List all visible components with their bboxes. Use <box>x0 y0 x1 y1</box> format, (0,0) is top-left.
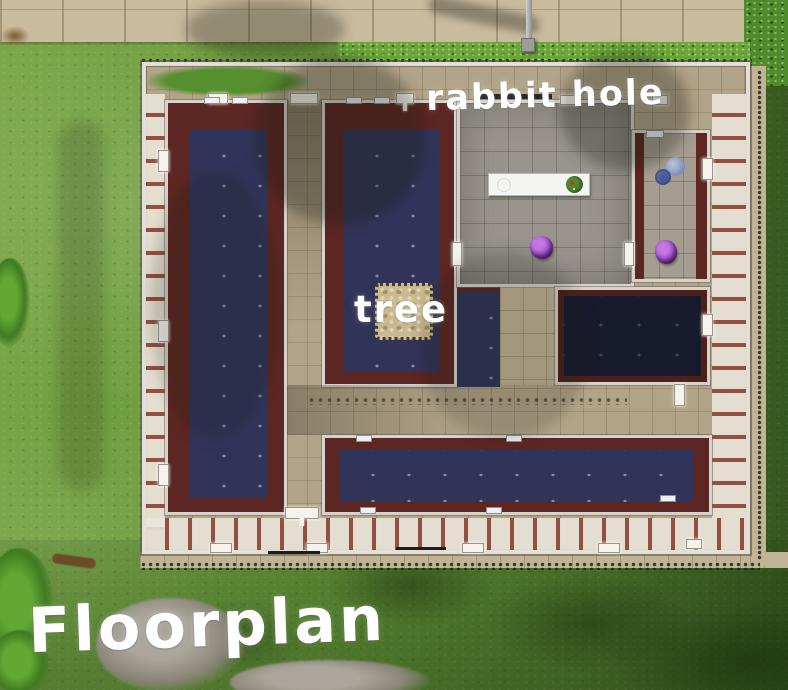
hedge-overhang <box>148 66 308 96</box>
door <box>396 93 414 104</box>
window <box>660 495 676 502</box>
door <box>158 464 169 486</box>
window <box>204 97 220 104</box>
dirt-spot <box>0 26 30 46</box>
door <box>462 543 484 553</box>
room-middle-annex <box>457 287 500 387</box>
hedge-speckle-bottom <box>140 562 760 570</box>
floor-marker <box>268 551 320 554</box>
walkway-right <box>712 94 746 518</box>
purple-flower-bush-left <box>530 236 553 259</box>
hedge-speckle-right <box>756 70 764 560</box>
window <box>486 507 502 514</box>
walkway-bottom <box>146 518 746 550</box>
room-left-carpet <box>190 129 268 498</box>
floorplan-title: Floorplan <box>27 582 387 667</box>
window <box>360 507 376 514</box>
door <box>624 242 634 266</box>
door <box>452 242 462 266</box>
purple-flower-bush-right <box>655 240 677 264</box>
room-middle <box>322 100 457 387</box>
door <box>674 384 685 406</box>
basin-bowl-small <box>655 169 671 185</box>
door <box>210 543 232 553</box>
narrow-room-wall-left <box>635 133 644 279</box>
door <box>598 543 620 553</box>
window <box>374 97 390 104</box>
room-dark <box>555 287 710 385</box>
window <box>646 130 664 138</box>
door <box>686 539 702 549</box>
game-floorplan-screenshot: rabbit hole tree Floorplan <box>0 0 788 690</box>
corridor-horizontal <box>287 385 710 435</box>
window <box>356 435 372 442</box>
door <box>290 93 318 104</box>
floor-marker <box>396 547 446 550</box>
dirt-trail <box>307 397 627 405</box>
window <box>346 97 362 104</box>
door <box>702 158 713 180</box>
room-bottom-carpet <box>339 450 693 502</box>
tree-label: tree <box>354 288 448 331</box>
lamp-post-base <box>521 38 535 52</box>
sidewalk <box>0 0 752 42</box>
window <box>506 435 522 442</box>
door <box>702 314 713 336</box>
room-bottom <box>322 435 712 515</box>
rabbit-hole-label: rabbit hole <box>426 73 666 119</box>
door <box>158 150 169 172</box>
room-dark-carpet <box>564 296 701 376</box>
flower-arrangement <box>566 176 583 193</box>
room-left <box>165 100 287 515</box>
corridor-vertical-left <box>287 100 322 520</box>
narrow-room-wall-right <box>696 133 707 279</box>
corridor-vertical-middle <box>500 287 555 385</box>
counter-table <box>488 173 590 196</box>
lamp-post <box>526 0 532 42</box>
water-basin <box>655 157 685 185</box>
door <box>158 320 169 342</box>
door <box>285 507 319 519</box>
window <box>232 97 248 104</box>
